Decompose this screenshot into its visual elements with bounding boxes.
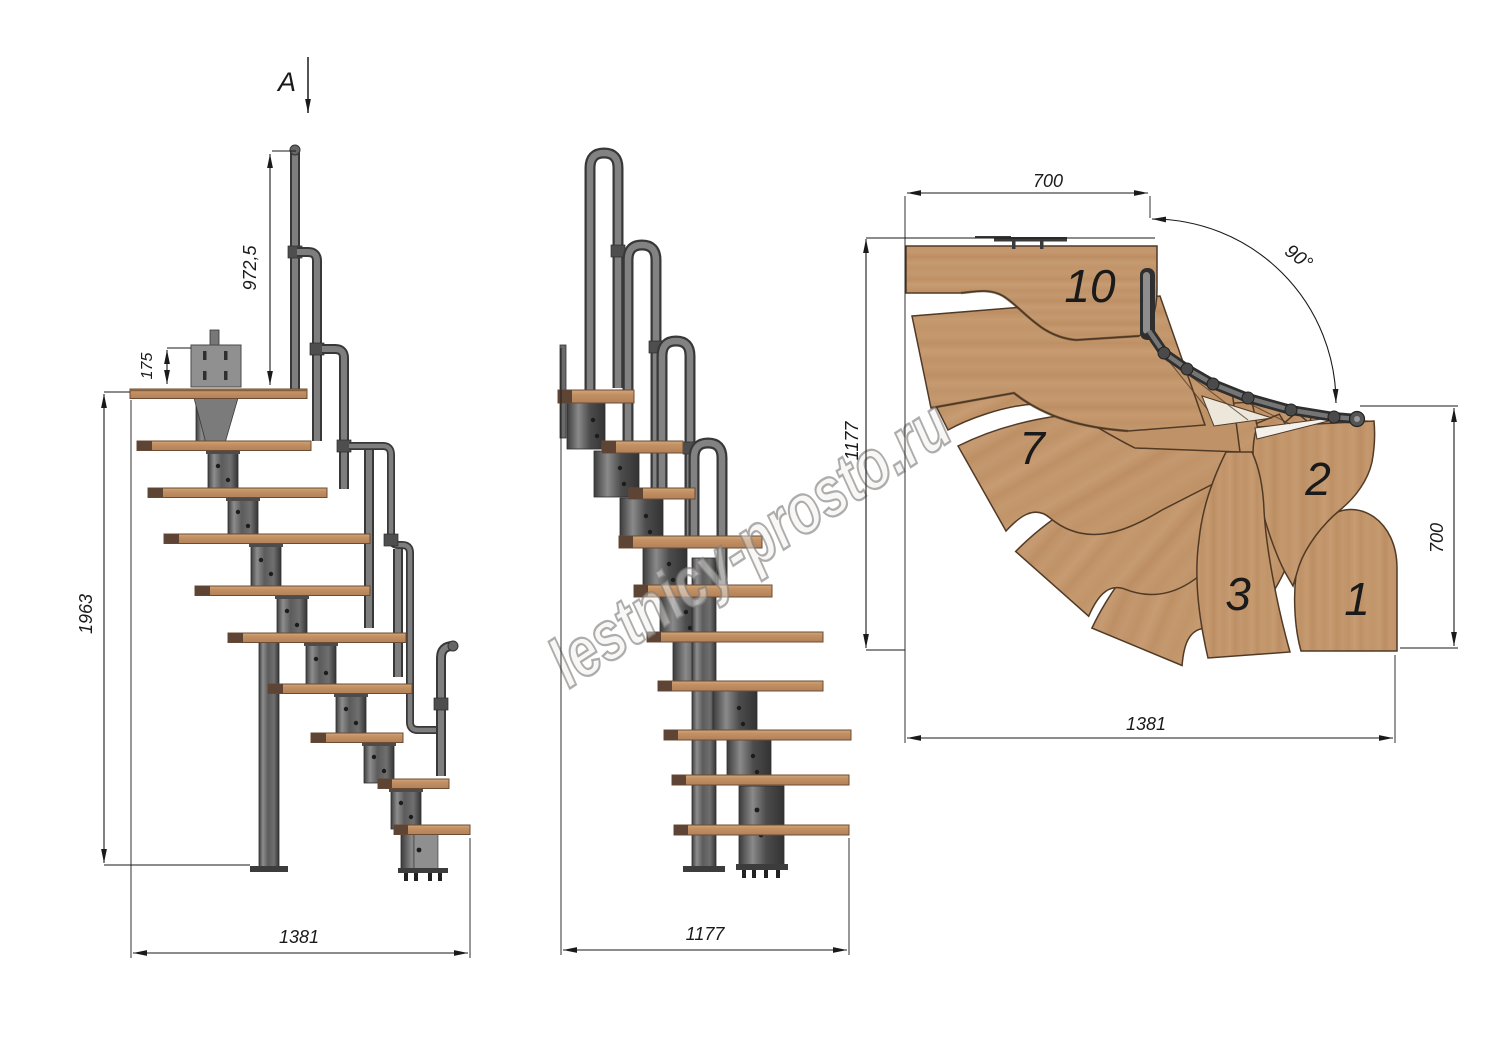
svg-text:1963: 1963 xyxy=(76,594,96,634)
svg-text:1: 1 xyxy=(1344,573,1370,625)
svg-text:1177: 1177 xyxy=(842,421,862,461)
svg-text:972,5: 972,5 xyxy=(240,244,260,290)
svg-text:A: A xyxy=(276,67,296,97)
svg-text:3: 3 xyxy=(1225,568,1251,620)
svg-text:10: 10 xyxy=(1064,260,1116,312)
svg-text:7: 7 xyxy=(1019,422,1046,474)
svg-text:700: 700 xyxy=(1427,523,1447,553)
svg-text:175: 175 xyxy=(139,353,156,380)
svg-text:1381: 1381 xyxy=(279,927,319,947)
svg-text:1177: 1177 xyxy=(686,924,726,944)
svg-text:700: 700 xyxy=(1033,171,1063,191)
svg-text:2: 2 xyxy=(1304,453,1331,505)
svg-text:1381: 1381 xyxy=(1126,714,1166,734)
